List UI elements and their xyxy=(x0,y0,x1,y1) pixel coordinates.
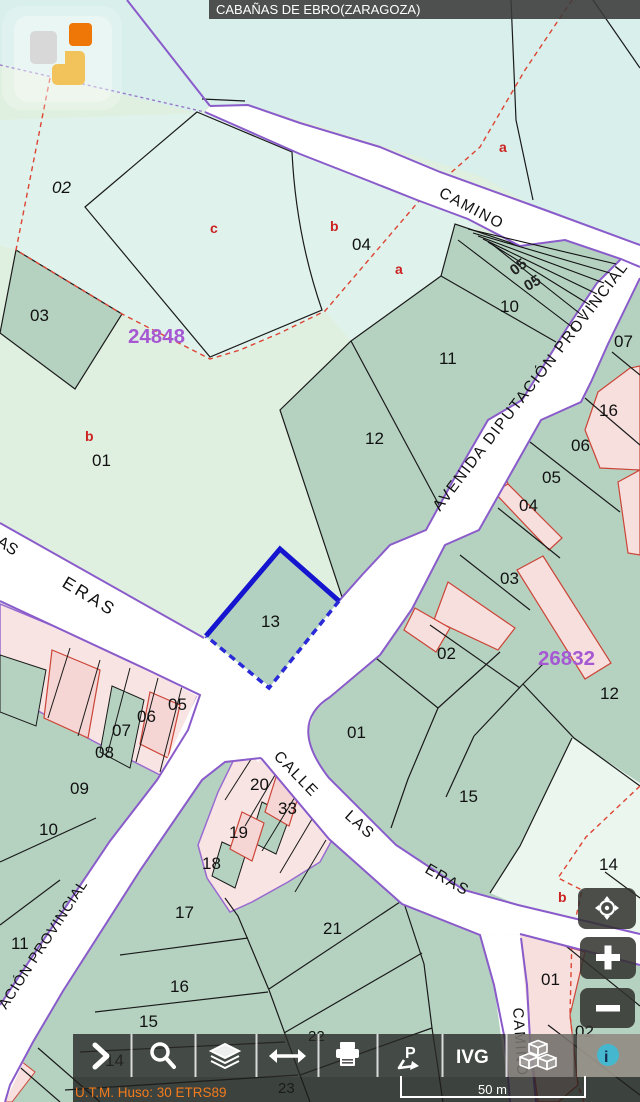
svg-text:CABAÑAS DE EBRO(ZARAGOZA): CABAÑAS DE EBRO(ZARAGOZA) xyxy=(216,2,420,17)
svg-text:i: i xyxy=(604,1049,608,1066)
svg-text:P: P xyxy=(405,1045,416,1062)
svg-text:50 m: 50 m xyxy=(478,1082,507,1097)
svg-text:U.T.M. Huso: 30 ETRS89: U.T.M. Huso: 30 ETRS89 xyxy=(75,1085,227,1100)
svg-text:IVG: IVG xyxy=(456,1047,489,1068)
